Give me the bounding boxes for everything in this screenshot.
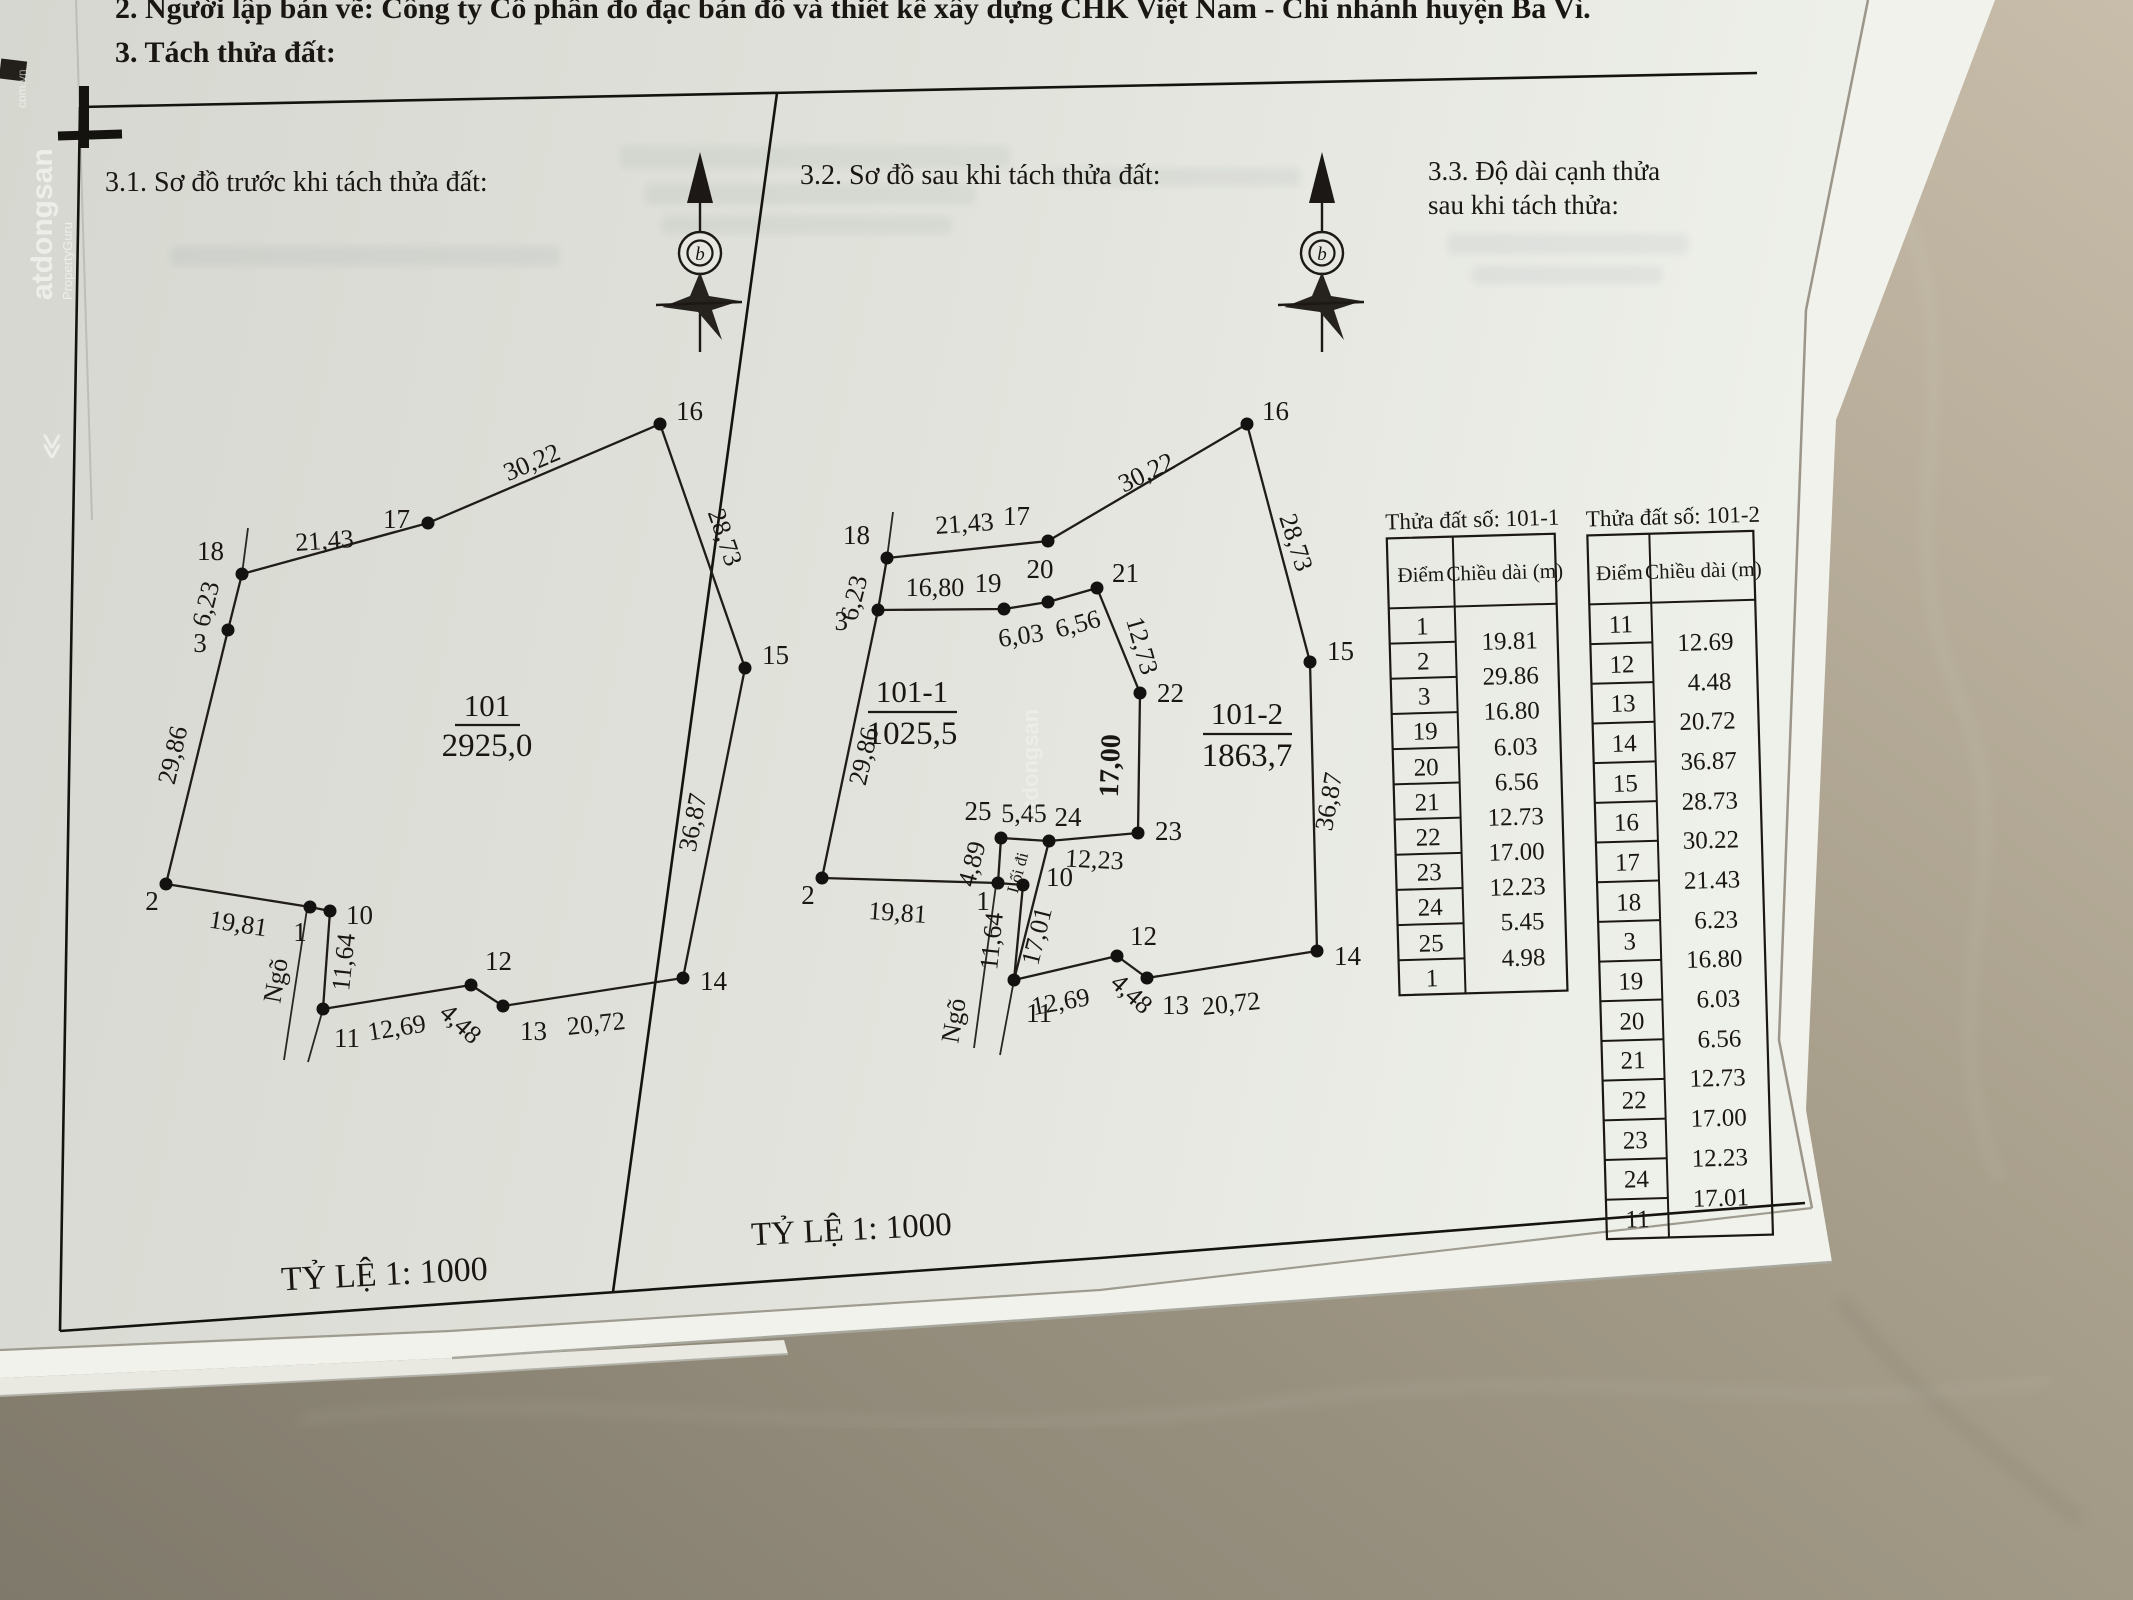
table-cell: 22 <box>1415 824 1441 852</box>
table-cell: 1 <box>1425 965 1438 992</box>
table-cell: 19 <box>1412 718 1438 746</box>
table-cell: 16 <box>1614 809 1640 837</box>
after-edge-2-1: 19,81 <box>867 896 927 929</box>
section-3-3-title-line2: sau khi tách thửa: <box>1428 190 1619 220</box>
section-3-3-title-line1: 3.3. Độ dài cạnh thửa <box>1428 156 1660 186</box>
table-cell: 29.86 <box>1482 662 1539 691</box>
after-edge-23-24: 12,23 <box>1064 844 1124 876</box>
table-cell: 6.03 <box>1696 985 1740 1013</box>
table-cell: 12.23 <box>1691 1144 1748 1173</box>
table2-title: Thửa đất số: 101-2 <box>1586 502 1761 532</box>
table-cell: 15 <box>1612 770 1638 798</box>
after-vertex-11: 11 <box>1026 998 1052 1028</box>
table-cell: 36.87 <box>1680 747 1737 776</box>
site-watermark-center: atdongsan <box>1018 709 1043 820</box>
table-cell: 21 <box>1620 1047 1646 1075</box>
table-cell: 23 <box>1622 1127 1648 1155</box>
after-vertex-13: 13 <box>1162 990 1189 1020</box>
table-cell: 16.80 <box>1483 697 1540 726</box>
table-cell: 24 <box>1417 894 1443 922</box>
photo-of-survey-document: 2. Người lập bản vẽ: Công ty Cổ phần đo … <box>0 0 2133 1600</box>
after-vertex-15: 15 <box>1327 636 1354 666</box>
table-cell: 20 <box>1413 754 1439 782</box>
table-cell: 6.23 <box>1694 906 1738 934</box>
after-vertex-17: 17 <box>1003 501 1030 531</box>
table-cell: 20 <box>1619 1008 1645 1036</box>
before-vertex-10: 10 <box>346 900 373 930</box>
compass-letter-right: b <box>1317 244 1327 265</box>
after-plot1-id: 101-1 <box>876 674 948 709</box>
after-vertex-12: 12 <box>1130 921 1157 951</box>
table-cell: 18 <box>1616 889 1642 917</box>
before-plot-id: 101 <box>464 688 511 723</box>
table-cell: 12.73 <box>1487 803 1544 832</box>
after-vertex-20: 20 <box>1027 554 1054 584</box>
table-cell: 14 <box>1611 730 1637 758</box>
before-vertex-3: 3 <box>193 628 207 658</box>
before-plot-area: 2925,0 <box>442 728 533 764</box>
table1-title: Thửa đất số: 101-1 <box>1385 505 1560 535</box>
table1-col-length: Chiều dài (m) <box>1446 559 1563 586</box>
watermark-chevron-icon: ≪ <box>36 433 66 460</box>
before-vertex-17: 17 <box>383 504 410 534</box>
after-edge-10-11: 11,64 <box>974 911 1009 971</box>
after-vertex-24: 24 <box>1055 802 1083 832</box>
table-cell: 1 <box>1416 613 1429 640</box>
after-vertex-19: 19 <box>975 568 1002 598</box>
table-cell: 22 <box>1621 1087 1647 1115</box>
table-cell: 19 <box>1618 968 1644 996</box>
after-vertex-22: 22 <box>1157 678 1184 708</box>
table-cell: 23 <box>1416 859 1442 887</box>
before-vertex-1: 1 <box>293 917 307 947</box>
table-cell: 3 <box>1418 683 1431 710</box>
watermark-domain: com.vn <box>15 69 29 108</box>
table-cell: 12.73 <box>1689 1064 1746 1093</box>
table-cell: 17.00 <box>1488 838 1545 867</box>
table-cell: 21 <box>1414 789 1440 817</box>
before-vertex-18: 18 <box>197 536 224 566</box>
table-cell: 12 <box>1609 651 1635 679</box>
before-vertex-14: 14 <box>700 966 728 996</box>
after-edge-14-13: 20,72 <box>1201 986 1262 1021</box>
before-edge-14-13: 20,72 <box>566 1006 627 1041</box>
before-vertex-15: 15 <box>762 640 789 670</box>
after-vertex-21: 21 <box>1112 558 1139 588</box>
after-edge-22-23: 17,00 <box>1094 734 1127 798</box>
table2-col-length: Chiều dài (m) <box>1645 557 1762 584</box>
table-cell: 5.45 <box>1500 908 1544 936</box>
table-cell: 30.22 <box>1682 826 1739 855</box>
header-line2: 3. Tách thửa đất: <box>115 36 336 69</box>
after-vertex-25: 25 <box>965 796 992 826</box>
after-vertex-16: 16 <box>1262 396 1289 426</box>
table-cell: 17.01 <box>1692 1184 1749 1213</box>
after-edge-3-19: 16,80 <box>906 573 965 602</box>
after-plot2-area: 1863,7 <box>1202 738 1293 774</box>
after-edge-18-17: 21,43 <box>934 507 994 540</box>
table-cell: 2 <box>1417 648 1430 675</box>
before-edge-18-17: 21,43 <box>294 524 354 557</box>
table-cell: 17.00 <box>1690 1104 1747 1133</box>
before-vertex-2: 2 <box>145 886 159 916</box>
table-cell: 19.81 <box>1481 627 1538 656</box>
header-line1: 2. Người lập bản vẽ: Công ty Cổ phần đo … <box>115 0 1591 25</box>
table-cell: 20.72 <box>1679 707 1736 736</box>
after-vertex-23: 23 <box>1155 816 1182 846</box>
after-plot2-id: 101-2 <box>1211 696 1283 731</box>
table-cell: 17 <box>1615 849 1641 877</box>
after-vertex-1: 1 <box>976 886 990 916</box>
table-cell: 28.73 <box>1681 787 1738 816</box>
section-3-1-title: 3.1. Sơ đồ trước khi tách thửa đất: <box>105 167 488 198</box>
document-canvas: 2. Người lập bản vẽ: Công ty Cổ phần đo … <box>0 0 2133 1600</box>
watermark-partner: PropertyGuru <box>60 222 75 300</box>
table-cell: 25 <box>1418 930 1444 958</box>
table-cell: 24 <box>1623 1166 1649 1194</box>
table-cell: 11 <box>1608 611 1633 639</box>
before-edge-10-11: 11,64 <box>326 932 361 992</box>
table-cell: 6.03 <box>1493 733 1537 761</box>
table-cell: 16.80 <box>1686 945 1743 974</box>
table-cell: 13 <box>1610 690 1636 718</box>
table-cell: 6.56 <box>1697 1025 1741 1053</box>
table-cell: 12.69 <box>1677 628 1734 657</box>
table-cell: 4.48 <box>1687 668 1731 696</box>
table-cell: 11 <box>1625 1206 1650 1234</box>
after-vertex-2: 2 <box>801 880 815 910</box>
watermark-brand-faint: atdongsan <box>1018 709 1043 820</box>
table1-col-point: Điểm <box>1397 562 1444 587</box>
after-vertex-18: 18 <box>843 520 870 550</box>
before-vertex-13: 13 <box>520 1016 547 1046</box>
before-vertex-12: 12 <box>485 946 512 976</box>
table-cell: 12.23 <box>1489 873 1546 902</box>
table-cell: 21.43 <box>1684 866 1741 895</box>
table-cell: 6.56 <box>1494 768 1538 796</box>
table-cell: 4.98 <box>1501 944 1545 972</box>
section-3-2-title: 3.2. Sơ đồ sau khi tách thửa đất: <box>800 160 1161 191</box>
before-vertex-11: 11 <box>334 1023 360 1053</box>
table2-col-point: Điểm <box>1596 560 1643 585</box>
after-vertex-14: 14 <box>1334 941 1362 971</box>
before-vertex-16: 16 <box>676 396 703 426</box>
after-plot1-area: 1025,5 <box>867 716 958 752</box>
table-cell: 3 <box>1623 928 1636 955</box>
compass-letter-left: b <box>695 244 705 265</box>
watermark-brand: atdongsan <box>26 148 59 300</box>
